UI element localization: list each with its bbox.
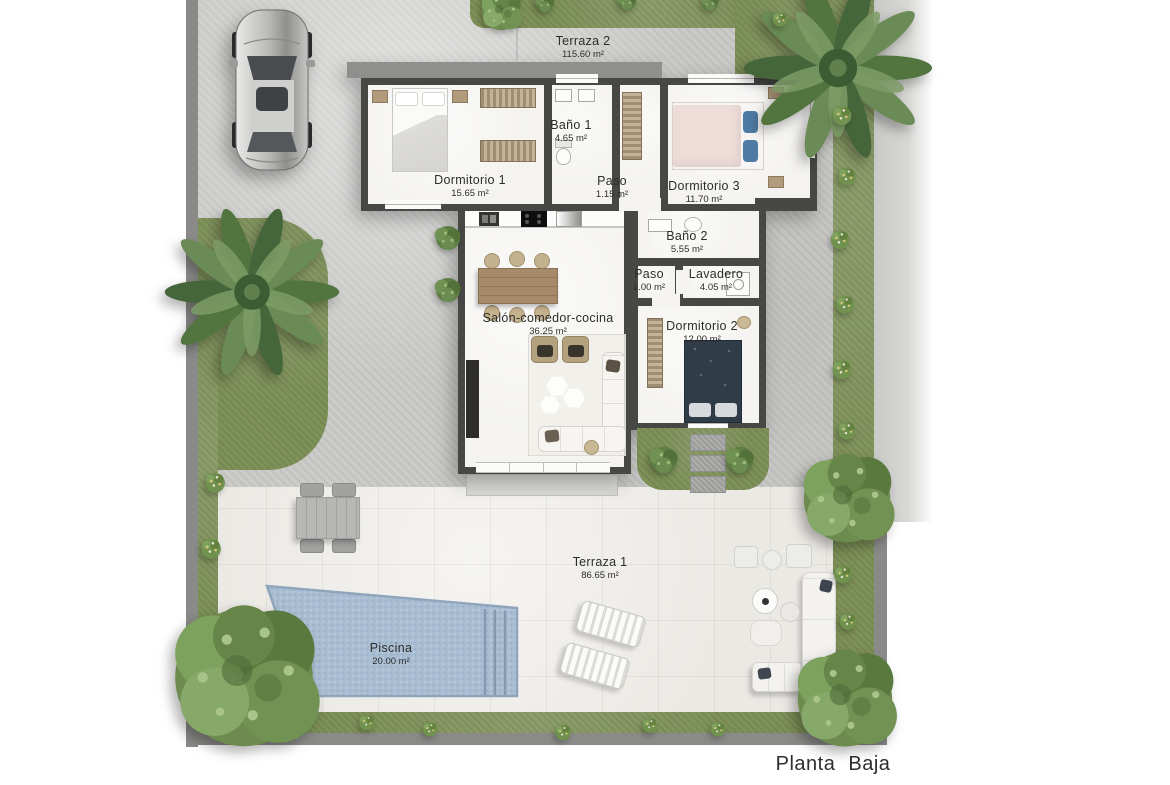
room-label-paso2: Paso 1.00 m²: [633, 266, 665, 295]
room-area: 36.25 m²: [482, 326, 613, 338]
room-label-terraza1: Terraza 1 86.65 m²: [573, 554, 628, 583]
room-name: Dormitorio 3: [668, 178, 740, 194]
stepping-stone: [690, 455, 726, 472]
room-label-bano2: Baño 2 5.55 m²: [666, 228, 707, 257]
room-label-bano1: Baño 1 4.65 m²: [550, 117, 591, 146]
stepping-stone: [690, 434, 726, 451]
room-area: 11.70 m²: [668, 194, 740, 206]
room-area: 15.65 m²: [434, 188, 506, 200]
room-name: Dormitorio 2: [666, 318, 738, 334]
boundary-wall-bottom: [186, 733, 887, 745]
boundary-wall-right: [874, 520, 887, 745]
room-area: 1.15 m²: [596, 189, 628, 201]
outdoor-lounge-set: [728, 540, 840, 702]
room-area: 1.00 m²: [633, 282, 665, 294]
garden-strip-left: [198, 340, 218, 733]
room-label-salon: Salón-comedor-cocina 36.25 m²: [482, 310, 613, 339]
room-area: 12.00 m²: [666, 334, 738, 346]
room-name: Baño 1: [550, 117, 591, 133]
room-area: 115.60 m²: [556, 49, 611, 61]
room-name: Piscina: [370, 640, 412, 656]
side-path: [874, 0, 936, 522]
room-area: 4.05 m²: [689, 282, 744, 294]
room-label-lavadero: Lavadero 4.05 m²: [689, 266, 744, 295]
room-area: 5.55 m²: [666, 244, 707, 256]
room-name: Salón-comedor-cocina: [482, 310, 613, 326]
porch-step: [466, 474, 618, 496]
room-label-paso1: Paso 1.15 m²: [596, 173, 628, 202]
outdoor-dining-set: [292, 483, 364, 553]
plan-title: Planta Baja: [776, 753, 891, 776]
room-area: 86.65 m²: [573, 570, 628, 582]
room-label-dormitorio2: Dormitorio 2 12.00 m²: [666, 318, 738, 347]
room-label-dormitorio1: Dormitorio 1 15.65 m²: [434, 172, 506, 201]
stepping-stone: [690, 476, 726, 493]
room-name: Paso: [596, 173, 628, 189]
garden-strip-bottom: [198, 712, 874, 733]
room-label-terraza2: Terraza 2 115.60 m²: [556, 33, 611, 62]
car: [226, 4, 318, 176]
room-name: Paso: [633, 266, 665, 282]
boundary-wall-left: [186, 0, 198, 747]
floor-plan: Terraza 2 115.60 m² Baño 1 4.65 m² Dormi…: [0, 0, 1170, 785]
room-label-dormitorio3: Dormitorio 3 11.70 m²: [668, 178, 740, 207]
chaise-daybed: [802, 572, 836, 702]
room-area: 4.65 m²: [550, 133, 591, 145]
room-name: Dormitorio 1: [434, 172, 506, 188]
room-name: Baño 2: [666, 228, 707, 244]
room-label-piscina: Piscina 20.00 m²: [370, 640, 412, 669]
room-name: Lavadero: [689, 266, 744, 282]
round-table: [752, 588, 778, 614]
room-name: Terraza 2: [556, 33, 611, 49]
room-name: Terraza 1: [573, 554, 628, 570]
room-area: 20.00 m²: [370, 656, 412, 668]
